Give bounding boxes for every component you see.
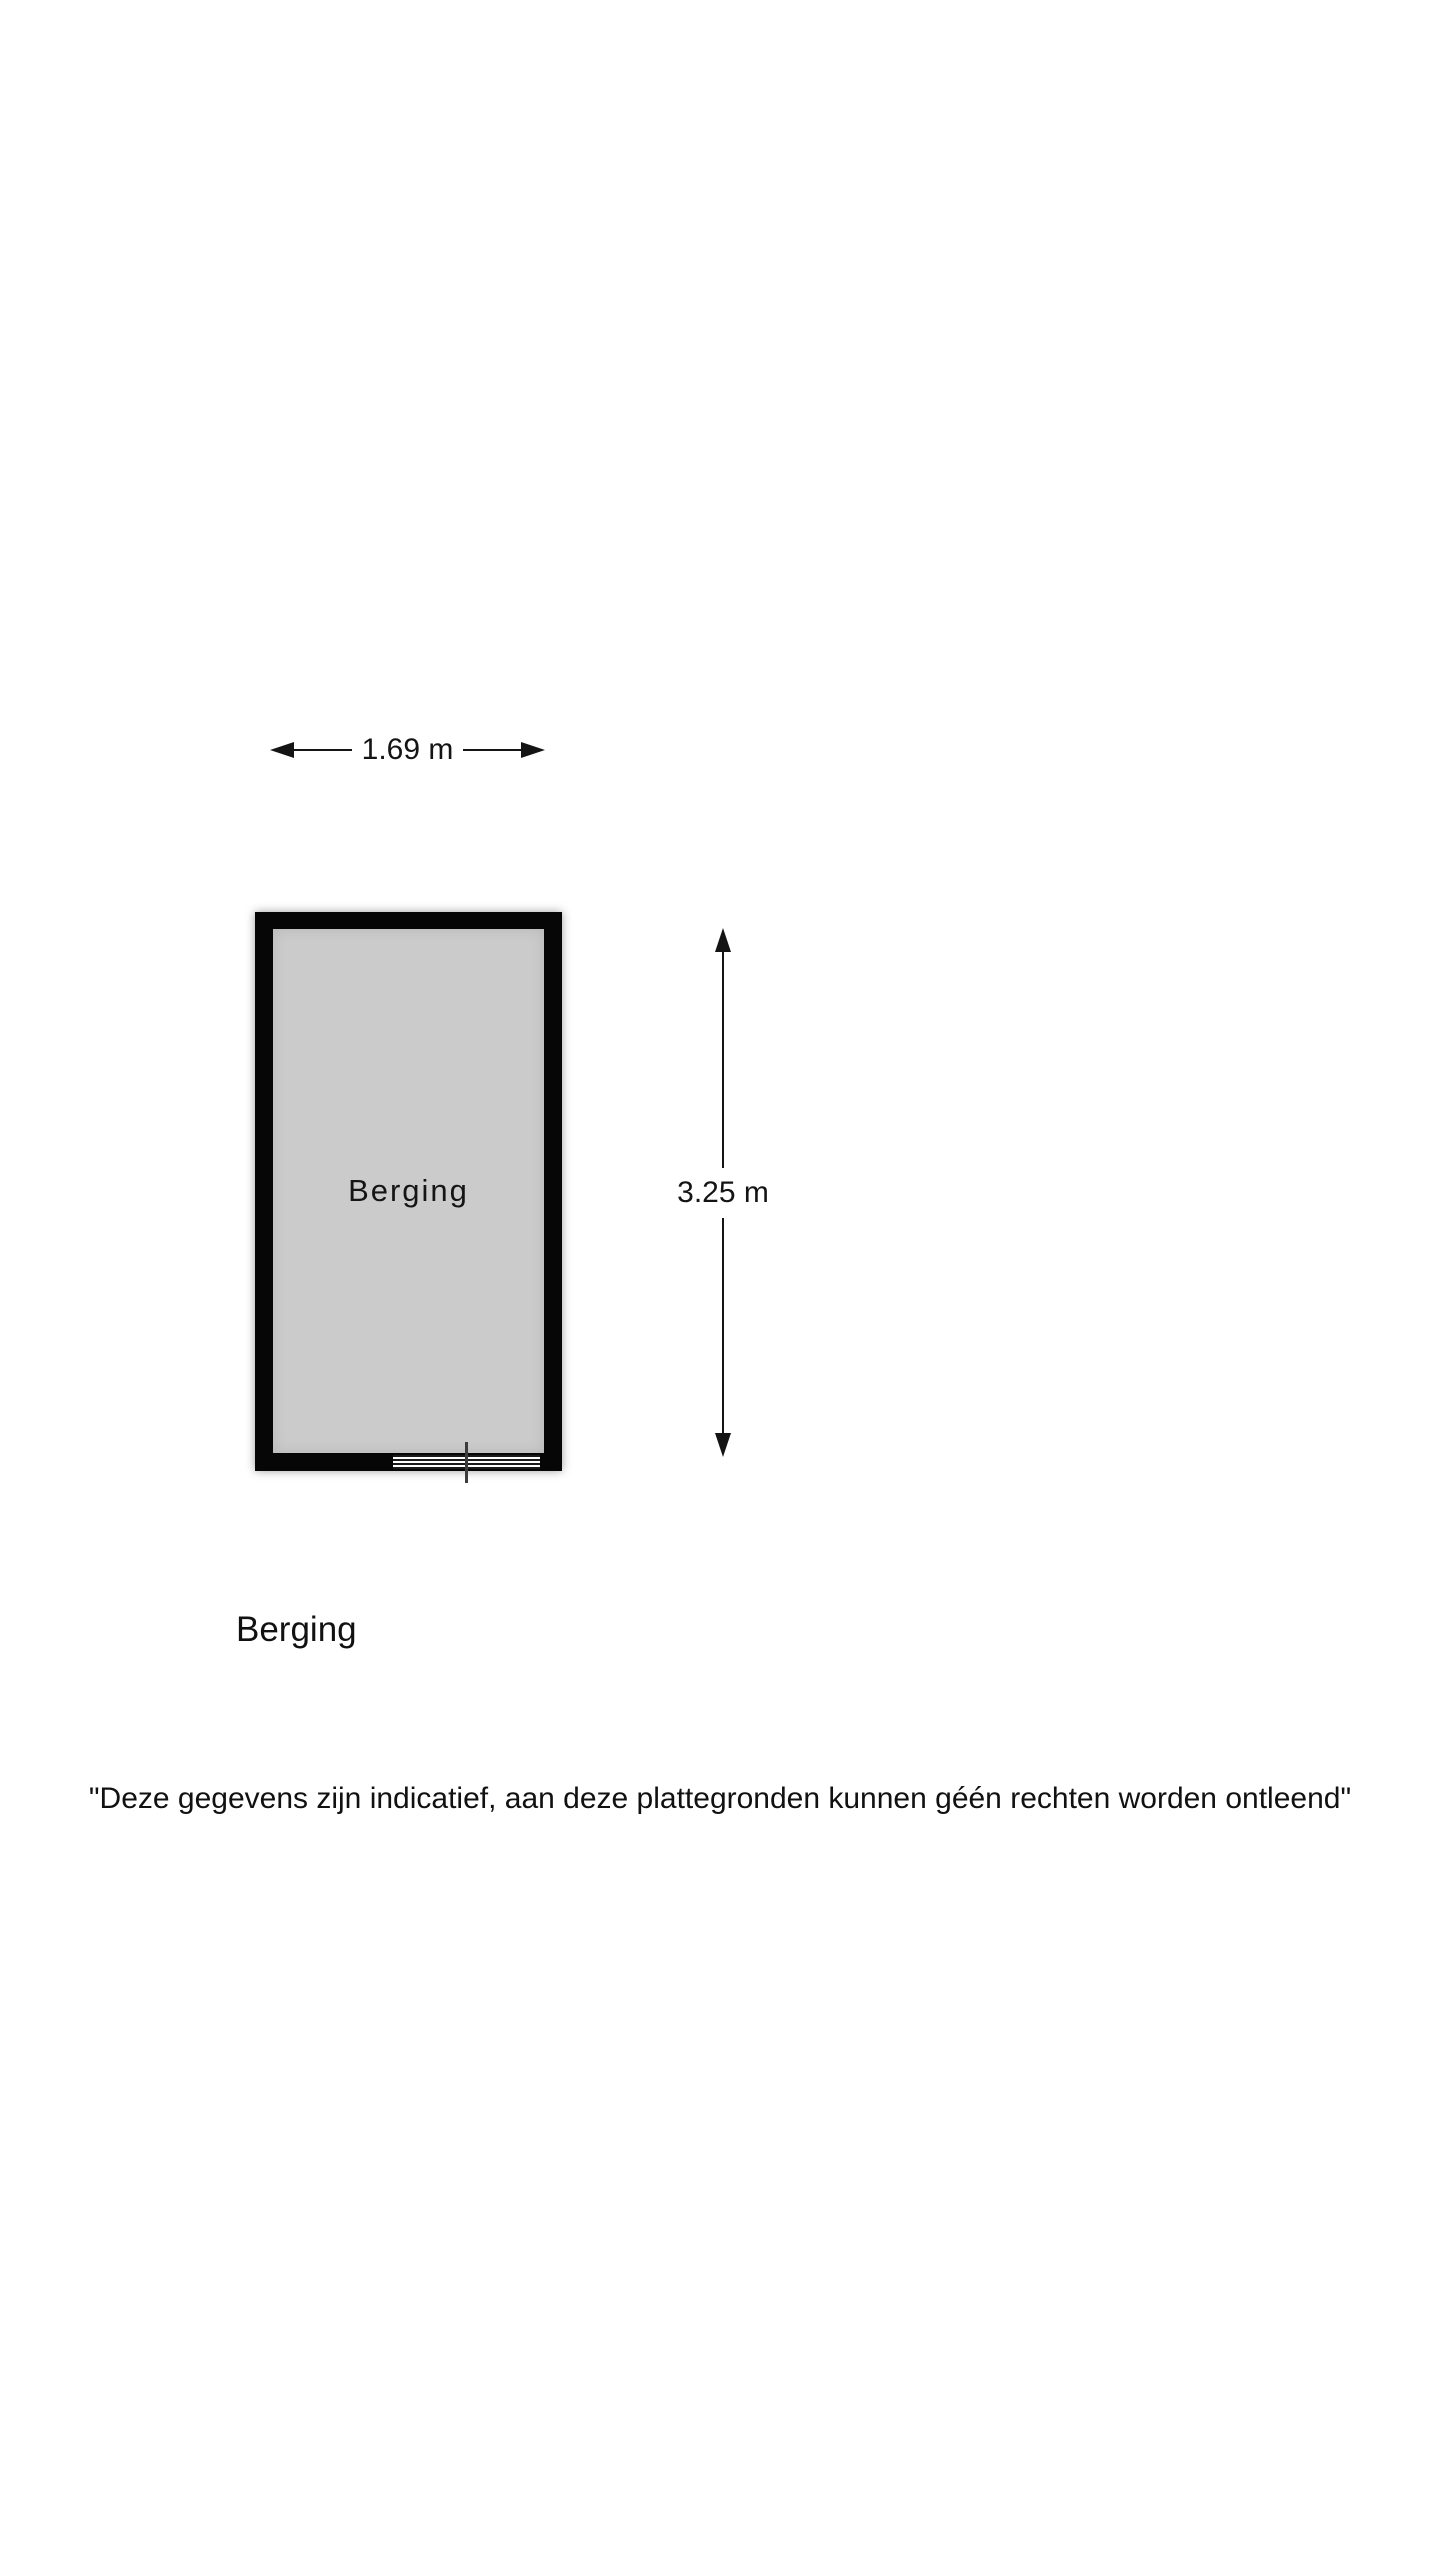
height-dimension: 3.25 m [658, 928, 788, 1457]
dimension-line [722, 952, 724, 1168]
floor-caption: Berging [236, 1610, 357, 1650]
door-opening-tick [465, 1442, 468, 1483]
arrow-right-icon [521, 742, 545, 758]
room-outline: Berging [255, 912, 562, 1471]
arrow-up-icon [715, 928, 731, 952]
dimension-line [294, 749, 352, 751]
room-floor: Berging [273, 929, 544, 1453]
dimension-line [463, 749, 521, 751]
room-label: Berging [348, 1173, 469, 1209]
height-dimension-label: 3.25 m [677, 1176, 769, 1210]
width-dimension-label: 1.69 m [352, 734, 464, 766]
disclaimer-text: "Deze gegevens zijn indicatief, aan deze… [0, 1782, 1440, 1816]
arrow-left-icon [270, 742, 294, 758]
floorplan-page: 1.69 m Berging 3.25 m Berging "Deze gege… [0, 0, 1440, 2560]
width-dimension: 1.69 m [270, 734, 545, 766]
dimension-line [722, 1218, 724, 1434]
arrow-down-icon [715, 1433, 731, 1457]
